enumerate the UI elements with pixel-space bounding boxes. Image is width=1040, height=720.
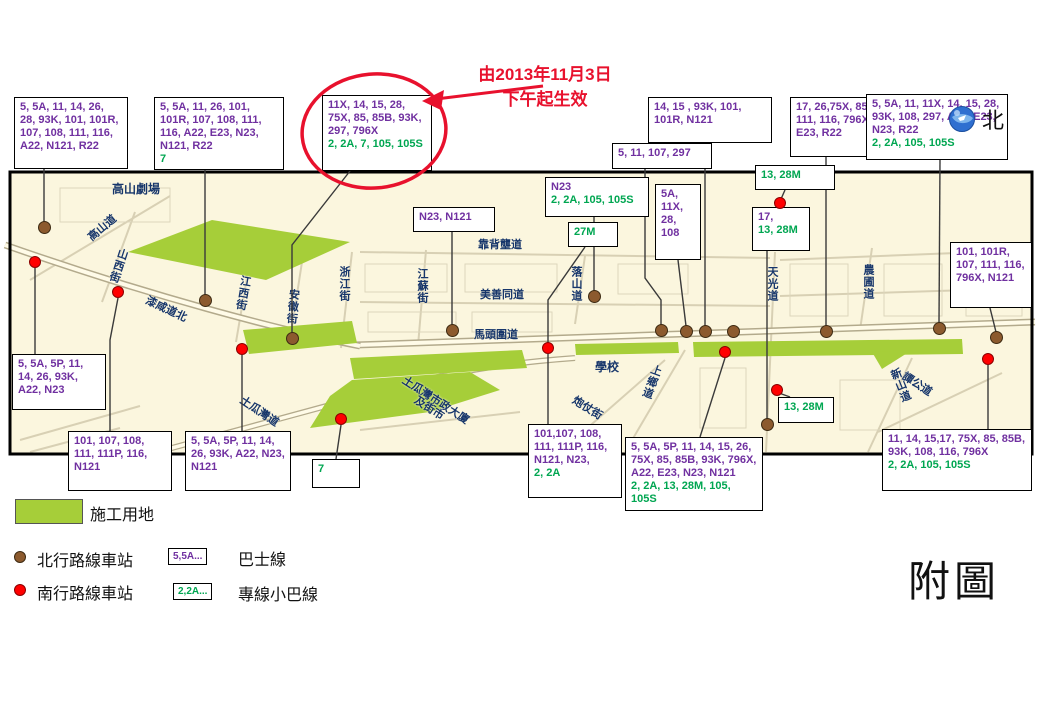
effective-date-annotation: 由2013年11月3日 下午起生效 — [430, 62, 660, 112]
north-label: 北 — [982, 103, 1004, 135]
figure-title: 附圖 — [908, 548, 1000, 609]
construction-zone — [693, 339, 963, 357]
figure-canvas: 高山劇場高山道山西街漆咸道北江西街安徽街浙江街江蘇街靠背壟道美善同道馬頭圍道落山… — [0, 0, 1040, 720]
globe-north-icon — [948, 105, 976, 133]
construction-zone — [575, 342, 679, 355]
map-background — [10, 172, 1032, 454]
annotation-line-2: 下午起生效 — [430, 87, 660, 112]
north-indicator: 北 — [948, 103, 1004, 135]
annotation-line-1: 由2013年11月3日 — [430, 62, 660, 87]
